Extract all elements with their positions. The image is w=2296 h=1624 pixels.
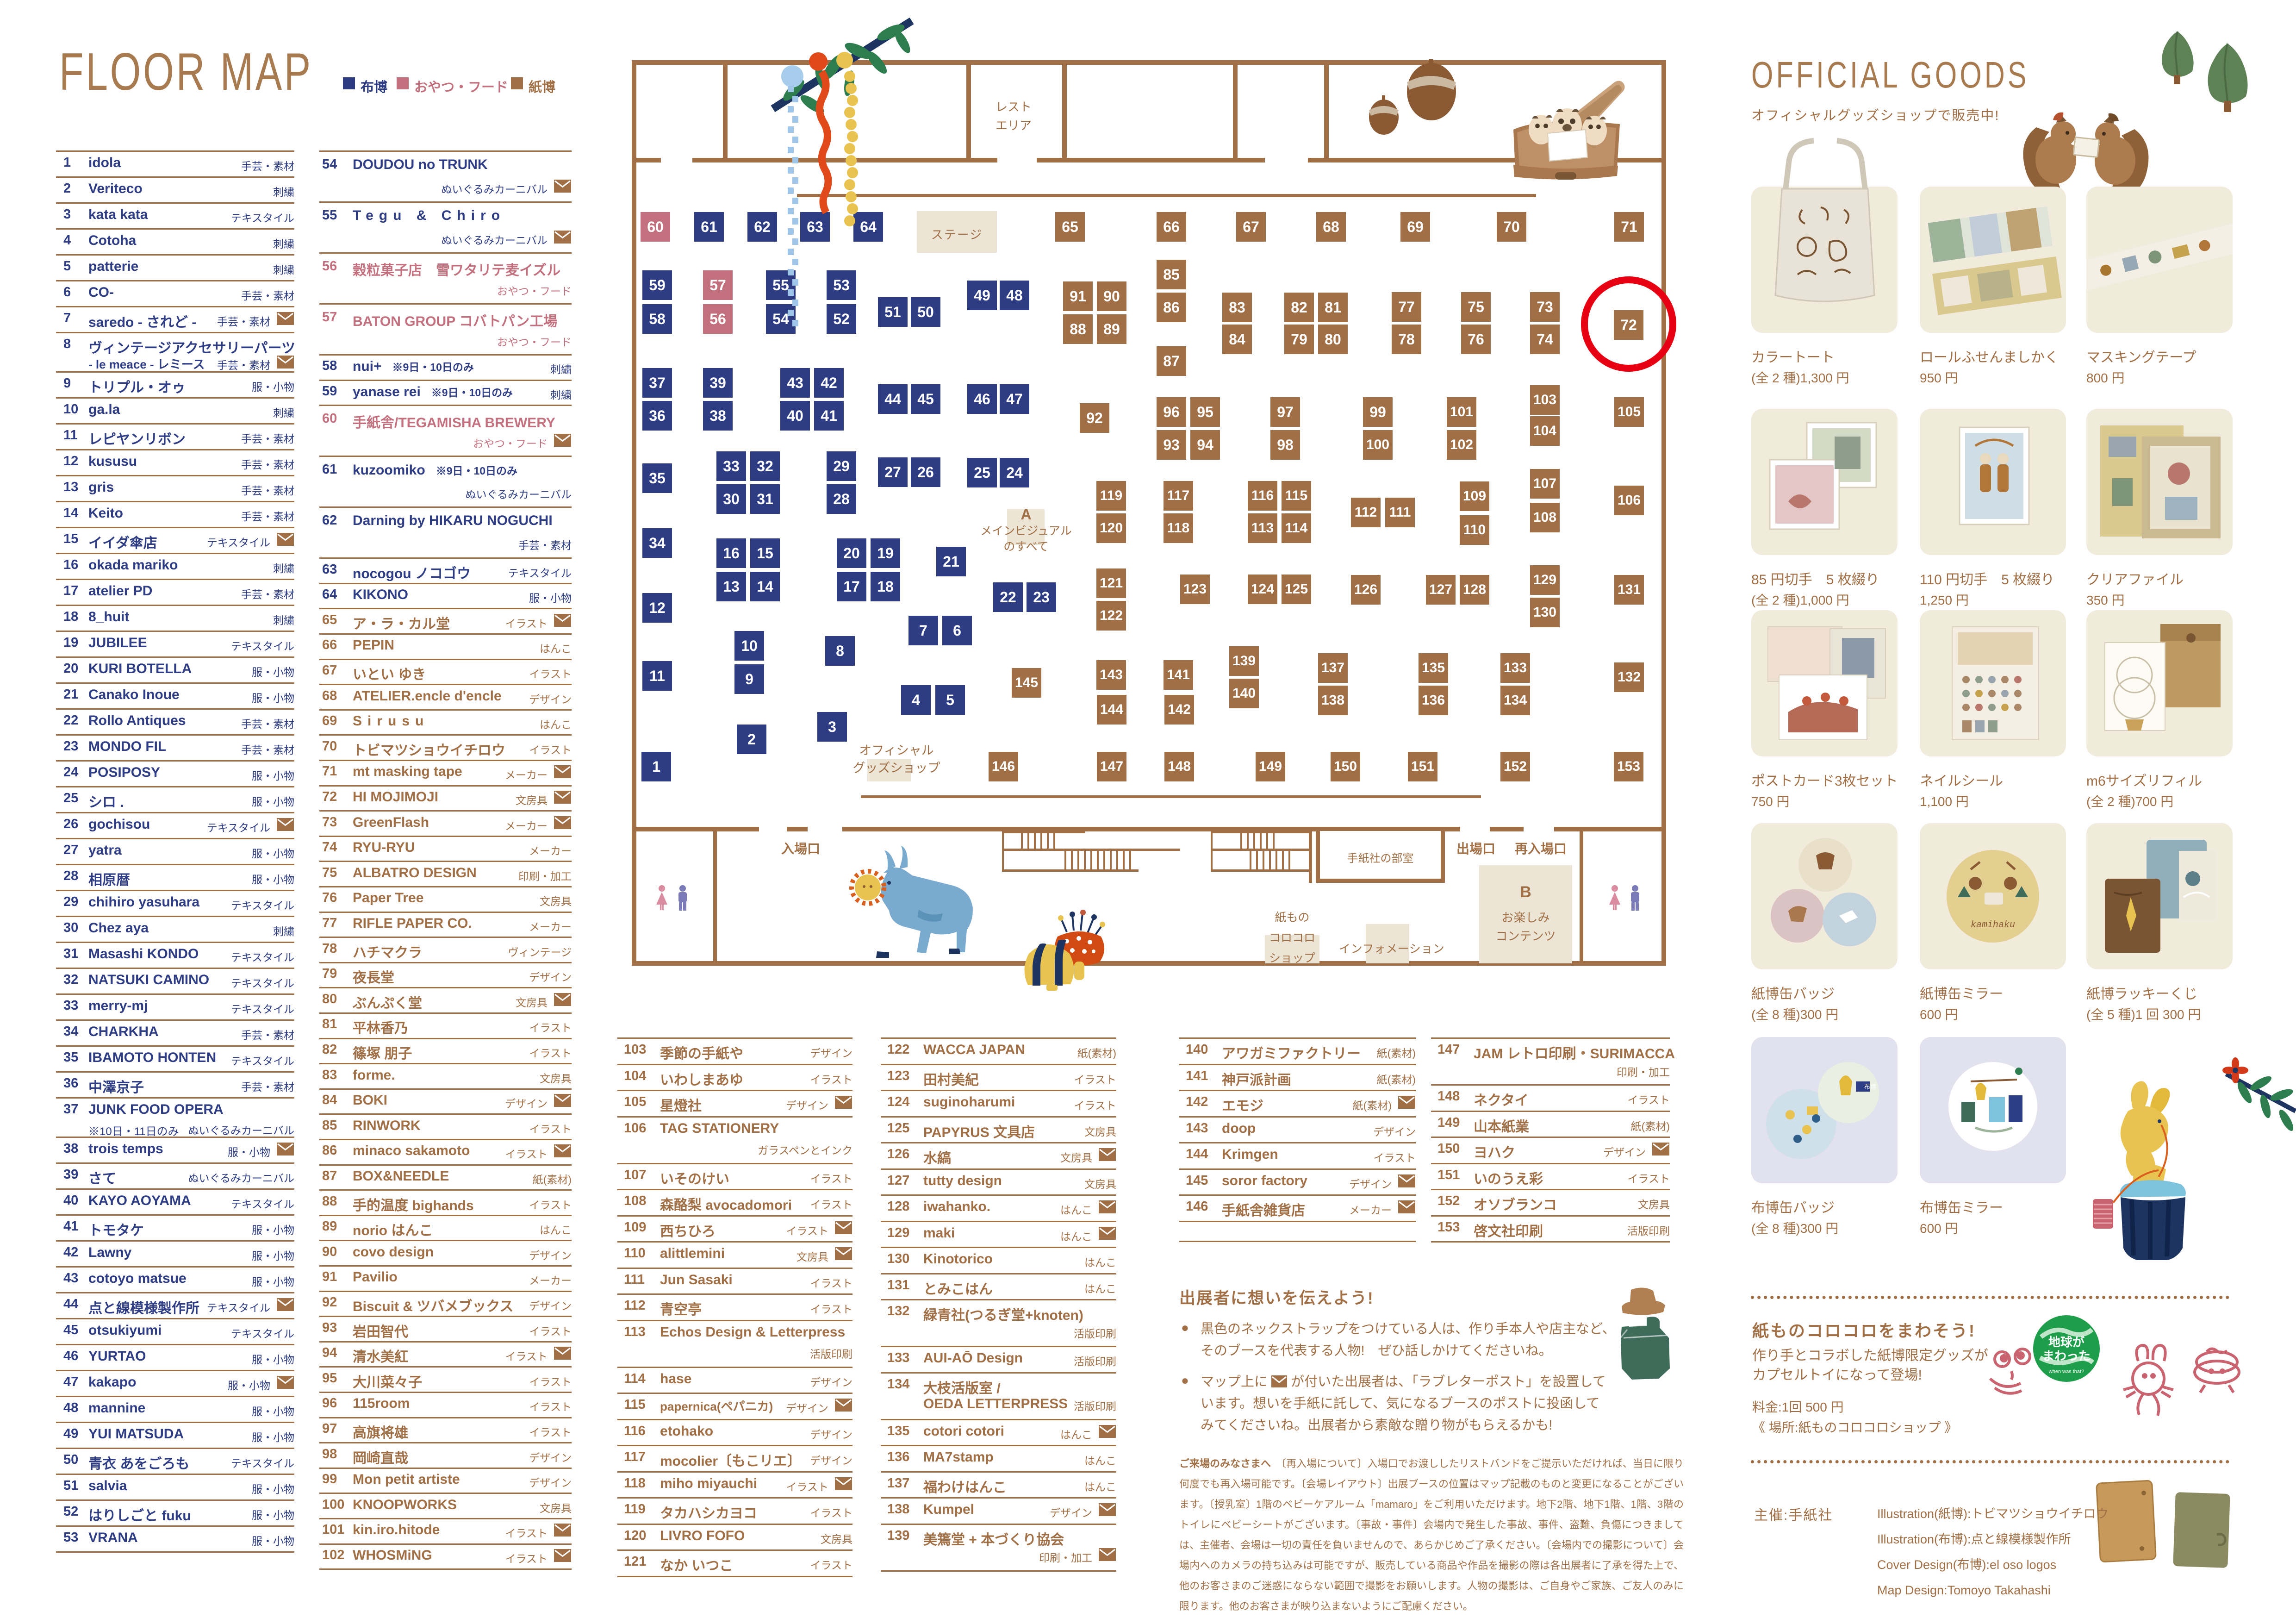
svg-text:布博: 布博 bbox=[1864, 1083, 1876, 1090]
svg-text:kamihaku: kamihaku bbox=[1971, 920, 2015, 931]
